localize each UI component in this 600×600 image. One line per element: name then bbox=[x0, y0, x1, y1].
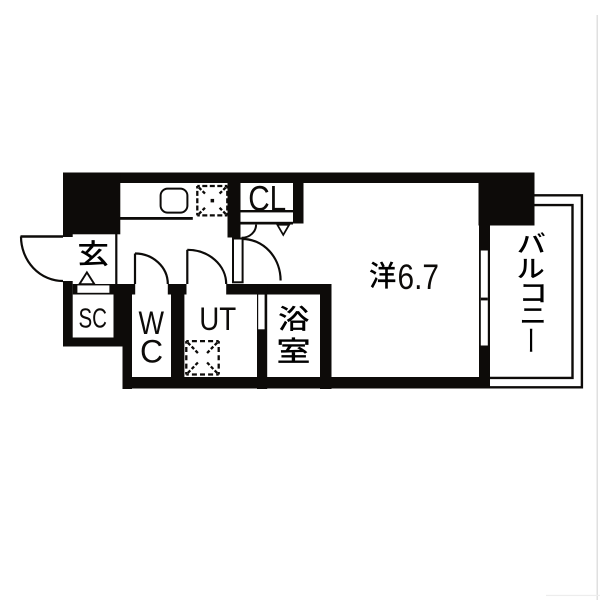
svg-text:C: C bbox=[140, 334, 163, 370]
svg-text:UT: UT bbox=[199, 301, 236, 337]
svg-text:CL: CL bbox=[248, 178, 286, 218]
svg-text:6.7: 6.7 bbox=[398, 257, 440, 297]
svg-text:SC: SC bbox=[78, 302, 107, 333]
